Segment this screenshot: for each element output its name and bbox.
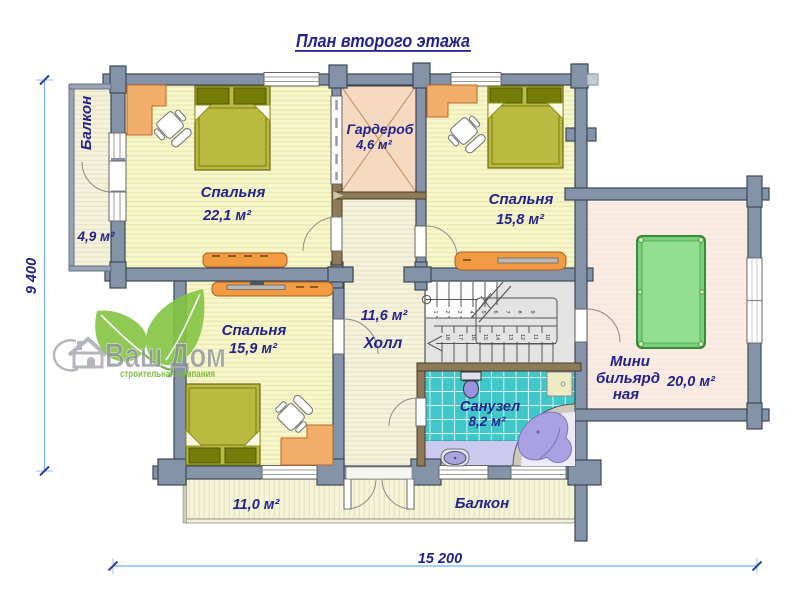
svg-text:ная: ная (613, 386, 639, 403)
svg-text:15,8 м²: 15,8 м² (496, 212, 545, 228)
svg-text:11,0 м²: 11,0 м² (233, 497, 281, 513)
svg-text:4,9 м²: 4,9 м² (77, 229, 116, 244)
svg-text:15: 15 (482, 334, 488, 340)
svg-text:Спальня: Спальня (201, 184, 266, 201)
svg-text:12: 12 (519, 334, 525, 340)
svg-text:5: 5 (480, 310, 486, 313)
svg-text:10: 10 (544, 334, 550, 340)
svg-text:8: 8 (516, 310, 522, 313)
svg-text:9 400: 9 400 (24, 258, 40, 294)
svg-text:Балкон: Балкон (455, 495, 509, 512)
svg-text:15,9 м²: 15,9 м² (229, 341, 278, 357)
svg-text:6: 6 (492, 310, 498, 313)
svg-text:7: 7 (504, 310, 510, 313)
svg-text:9: 9 (529, 310, 535, 313)
svg-text:15 200: 15 200 (418, 551, 462, 567)
svg-text:17: 17 (457, 334, 463, 340)
svg-text:2: 2 (444, 310, 450, 313)
svg-text:14: 14 (494, 334, 500, 340)
svg-text:22,1 м²: 22,1 м² (202, 208, 252, 224)
svg-text:Балкон: Балкон (78, 96, 95, 150)
svg-text:Холл: Холл (363, 335, 403, 352)
svg-text:1: 1 (432, 310, 438, 313)
svg-text:11,6 м²: 11,6 м² (361, 308, 409, 324)
svg-text:20,0 м²: 20,0 м² (666, 374, 716, 390)
svg-text:Гардероб: Гардероб (347, 121, 414, 137)
svg-text:4: 4 (468, 310, 474, 313)
svg-text:бильярд: бильярд (596, 370, 660, 387)
svg-text:Мини: Мини (610, 353, 650, 370)
svg-text:Спальня: Спальня (489, 191, 554, 208)
svg-text:16: 16 (470, 334, 476, 340)
svg-text:строительная компания: строительная компания (120, 369, 215, 380)
svg-text:3: 3 (456, 310, 462, 313)
svg-text:Спальня: Спальня (222, 322, 287, 339)
svg-text:План второго этажа: План второго этажа (296, 31, 470, 51)
svg-text:8,2 м²: 8,2 м² (469, 414, 507, 429)
svg-text:11: 11 (532, 334, 538, 340)
svg-text:13: 13 (507, 334, 513, 340)
svg-text:18: 18 (444, 334, 450, 340)
svg-text:4,6 м²: 4,6 м² (355, 137, 392, 152)
svg-text:Санузел: Санузел (460, 399, 520, 415)
